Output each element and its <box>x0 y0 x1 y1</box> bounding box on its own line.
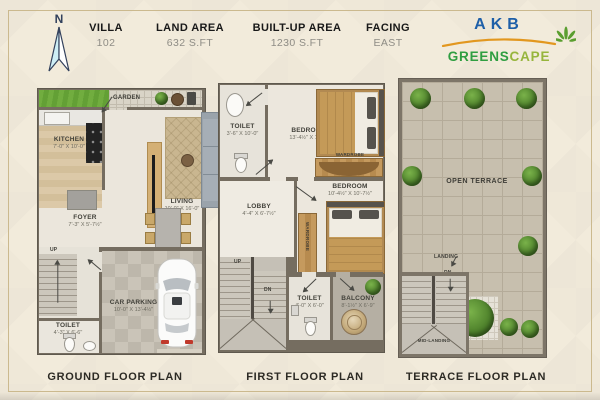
garden-plant-icon <box>155 92 168 105</box>
built-up-area-value: 1230 S.FT <box>242 37 352 49</box>
kitchen-appliance <box>67 190 97 210</box>
bed-icon <box>326 201 385 274</box>
balcony-floor: BALCONY 8'-1½" X 6'-9" <box>333 277 383 340</box>
stair-flight <box>436 276 466 324</box>
field-land-area: LAND AREA 632 S.FT <box>150 22 230 49</box>
headboard <box>379 90 384 156</box>
blanket <box>329 237 382 271</box>
first-stairs <box>220 257 286 350</box>
pillow <box>359 210 379 219</box>
first-floor-plan: TOILET 3'-6" X 10'-0" BEDROOM 13'-4½" X … <box>218 83 385 353</box>
wardrobe2-label: WARDROBE <box>305 222 310 251</box>
living-name: LIVING <box>147 198 217 206</box>
ground-floor-plan: GARDEN LIVING 10'-0" X 16'-0" <box>37 88 206 355</box>
toilet-bowl-icon <box>305 321 316 336</box>
dining-set <box>143 208 191 248</box>
washbasin-icon <box>83 341 96 351</box>
villa-label: VILLA <box>76 22 136 34</box>
ground-floor-caption: GROUND FLOOR PLAN <box>25 371 205 383</box>
first-toilet-top-name: TOILET <box>220 123 265 131</box>
wardrobe-front <box>319 162 378 176</box>
bed-icon <box>316 89 385 157</box>
kitchen-wall <box>102 110 105 190</box>
north-compass: N <box>42 13 76 77</box>
bedroom2-label: BEDROOM 10'-4½" X 10'-7½" <box>320 183 380 199</box>
coffee-table-icon <box>181 154 194 167</box>
logo-swoosh-icon <box>439 37 559 47</box>
north-arrow-icon <box>44 26 74 74</box>
pillow <box>367 127 376 149</box>
rattan-chair-icon <box>341 309 367 335</box>
stair-hip-line <box>220 318 255 349</box>
villa-value: 102 <box>76 37 136 49</box>
wardrobe1-label: WARDROBE <box>322 152 378 157</box>
first-up-label: UP <box>234 259 241 265</box>
logo-cape: CAPE <box>510 49 551 64</box>
stairs-dn-arrow-icon <box>269 301 270 313</box>
kitchen-floor <box>39 110 102 208</box>
field-built-up-area: BUILT-UP AREA 1230 S.FT <box>242 22 352 49</box>
stairs-dn-arrow-icon <box>449 279 450 291</box>
parking-floor: CAR PARKING 10'-0" X 13'-4½" <box>102 251 202 353</box>
mid-landing-label: MID-LANDING <box>404 338 464 343</box>
foyer-label: FOYER 7'-3" X 5'-7½" <box>51 214 119 230</box>
dining-table-icon <box>155 208 181 250</box>
plant-icon <box>500 318 518 336</box>
stair-divider <box>251 257 254 319</box>
plant-icon <box>464 88 485 109</box>
plant-icon <box>516 88 537 109</box>
brand-logo: AKB GREENSCAPE <box>424 16 574 64</box>
first-dn-label: DN <box>264 287 272 293</box>
headboard <box>327 202 384 207</box>
stair-divider <box>432 276 435 324</box>
bottom-shadow <box>0 392 600 400</box>
garden-table-icon <box>171 93 184 106</box>
floor-plan-poster: N VILLA 102 LAND AREA 632 S.FT BUILT-UP … <box>0 0 600 400</box>
first-toilet-bottom-floor: TOILET 4'-0" X 6'-0" <box>289 277 330 340</box>
plant-icon <box>522 166 542 186</box>
washbasin-icon <box>226 93 244 117</box>
foyer-dim: 7'-3" X 5'-7½" <box>51 222 119 229</box>
pillow <box>367 97 376 119</box>
logo-subtitle: GREENSCAPE <box>424 49 574 64</box>
dining-chair-icon <box>145 232 155 244</box>
stair-flight-up <box>220 257 250 319</box>
balcony-plant-icon <box>365 279 381 295</box>
field-facing: FACING EAST <box>356 22 420 49</box>
plant-icon <box>518 236 538 256</box>
wardrobe-icon: WARDROBE <box>298 213 317 274</box>
stair-flight <box>402 276 431 324</box>
kitchen-sink-icon <box>44 112 70 125</box>
facing-value: EAST <box>356 37 420 49</box>
plant-icon <box>402 166 422 186</box>
terrace-floor-plan: OPEN TERRACE LANDING DN MID-LANDING <box>398 78 547 358</box>
ground-toilet-floor: TOILET 4'-3" X 6'-6" <box>39 321 99 353</box>
plant-icon <box>410 88 431 109</box>
washbasin-icon <box>291 305 299 316</box>
parking-label: CAR PARKING 10'-0" X 13'-4½" <box>106 299 161 315</box>
garden-tiles: GARDEN <box>109 90 202 107</box>
dining-chair-icon <box>145 213 155 225</box>
garden-chair-icon <box>187 92 196 105</box>
land-area-label: LAND AREA <box>150 22 230 34</box>
field-villa: VILLA 102 <box>76 22 136 49</box>
dining-chair-icon <box>181 232 191 244</box>
first-toilet-top-floor: TOILET 3'-6" X 10'-0" <box>220 85 265 177</box>
north-label: N <box>42 13 76 25</box>
toilet-bowl-icon <box>235 157 247 173</box>
kitchen-dim: 7'-0" X 10'-0" <box>41 144 97 151</box>
first-toilet-bottom-name: TOILET <box>289 295 330 303</box>
toilet-bowl-icon <box>64 337 75 352</box>
garden-grass <box>39 90 109 107</box>
kitchen-name: KITCHEN <box>41 136 97 144</box>
stairs-up-arrow-icon <box>57 261 58 303</box>
car-icon <box>155 257 199 349</box>
open-terrace-label: OPEN TERRACE <box>427 178 527 185</box>
ground-up-label: UP <box>50 247 57 253</box>
terrace-floor-caption: TERRACE FLOOR PLAN <box>386 371 566 383</box>
terrace-stairs: MID-LANDING <box>402 276 466 354</box>
pillow <box>332 210 352 219</box>
logo-greens: GREENS <box>448 49 510 64</box>
bedroom2-dim: 10'-4½" X 10'-7½" <box>320 191 380 198</box>
ground-toilet-name: TOILET <box>41 322 95 330</box>
terrace-stairs-wall-right <box>466 272 469 354</box>
lobby-floor <box>220 181 294 257</box>
blanket <box>319 92 355 154</box>
garden-label: GARDEN <box>113 95 140 101</box>
facing-label: FACING <box>356 22 420 34</box>
first-floor-caption: FIRST FLOOR PLAN <box>215 371 395 383</box>
leaf-icon <box>556 26 576 48</box>
dining-chair-icon <box>181 213 191 225</box>
land-area-value: 632 S.FT <box>150 37 230 49</box>
kitchen-label: KITCHEN 7'-0" X 10'-0" <box>41 136 97 152</box>
first-toilet-top-dim: 3'-6" X 10'-0" <box>220 131 265 138</box>
balcony-label: BALCONY 8'-1½" X 6'-9" <box>333 295 383 311</box>
wardrobe-icon <box>315 158 383 177</box>
lobby-dim: 4'-4" X 6'-7½" <box>234 211 284 218</box>
parking-dim: 10'-0" X 13'-4½" <box>106 307 161 314</box>
lobby-label: LOBBY 4'-4" X 6'-7½" <box>234 203 284 219</box>
plant-icon <box>521 320 539 338</box>
built-up-area-label: BUILT-UP AREA <box>242 22 352 34</box>
stair-hip-line <box>251 318 286 349</box>
garage-opening <box>157 349 202 353</box>
first-toilet-top-label: TOILET 3'-6" X 10'-0" <box>220 123 265 139</box>
logo-name: AKB <box>424 16 574 34</box>
